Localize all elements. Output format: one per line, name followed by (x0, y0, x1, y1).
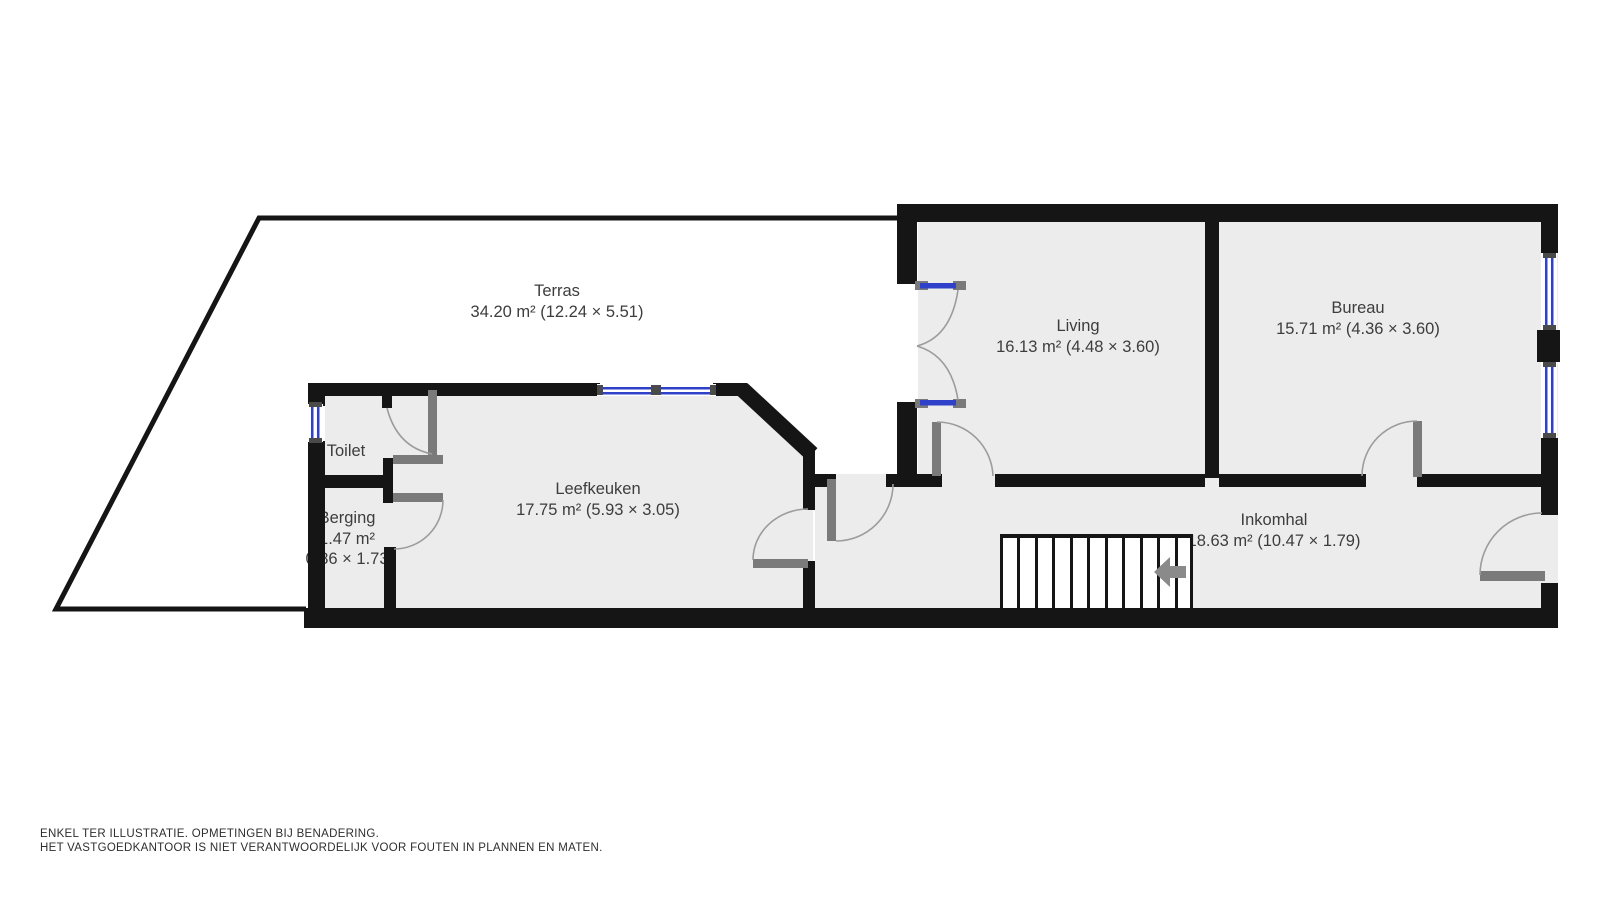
room-size-terras: 34.20 m² (12.24 × 5.51) (471, 303, 644, 321)
room-size-living: 16.13 m² (4.48 × 3.60) (996, 338, 1160, 356)
window-toilet-left (307, 402, 323, 443)
room-size-inkomhal: 18.63 m² (10.47 × 1.79) (1188, 532, 1361, 550)
floorplan-canvas: Terras 34.20 m² (12.24 × 5.51) Living 16… (0, 0, 1600, 900)
disclaimer: ENKEL TER ILLUSTRATIE. OPMETINGEN BIJ BE… (40, 828, 603, 854)
disclaimer-line-2: HET VASTGOEDKANTOOR IS NIET VERANTWOORDE… (40, 842, 603, 854)
room-label-inkomhal: Inkomhal (1241, 511, 1308, 529)
window-bureau-lower (1541, 362, 1557, 438)
disclaimer-line-1: ENKEL TER ILLUSTRATIE. OPMETINGEN BIJ BE… (40, 828, 379, 840)
room-label-leefkeuken: Leefkeuken (555, 480, 640, 498)
room-label-bureau: Bureau (1331, 299, 1384, 317)
room-size-leefkeuken: 17.75 m² (5.93 × 3.05) (516, 501, 680, 519)
room-label-living: Living (1056, 317, 1099, 335)
window-bureau-upper (1541, 253, 1557, 330)
window-leefkeuken-top (597, 384, 716, 396)
room-label-terras: Terras (534, 282, 580, 300)
stairs (1000, 534, 1193, 608)
room-size-berging: 1.47 m² (319, 530, 375, 548)
room-size-bureau: 15.71 m² (4.36 × 3.60) (1276, 320, 1440, 338)
room-fills (325, 205, 1558, 628)
room-label-toilet: Toilet (327, 442, 366, 460)
room-label-berging: Berging (319, 509, 376, 527)
bureau-fill (1205, 205, 1558, 487)
